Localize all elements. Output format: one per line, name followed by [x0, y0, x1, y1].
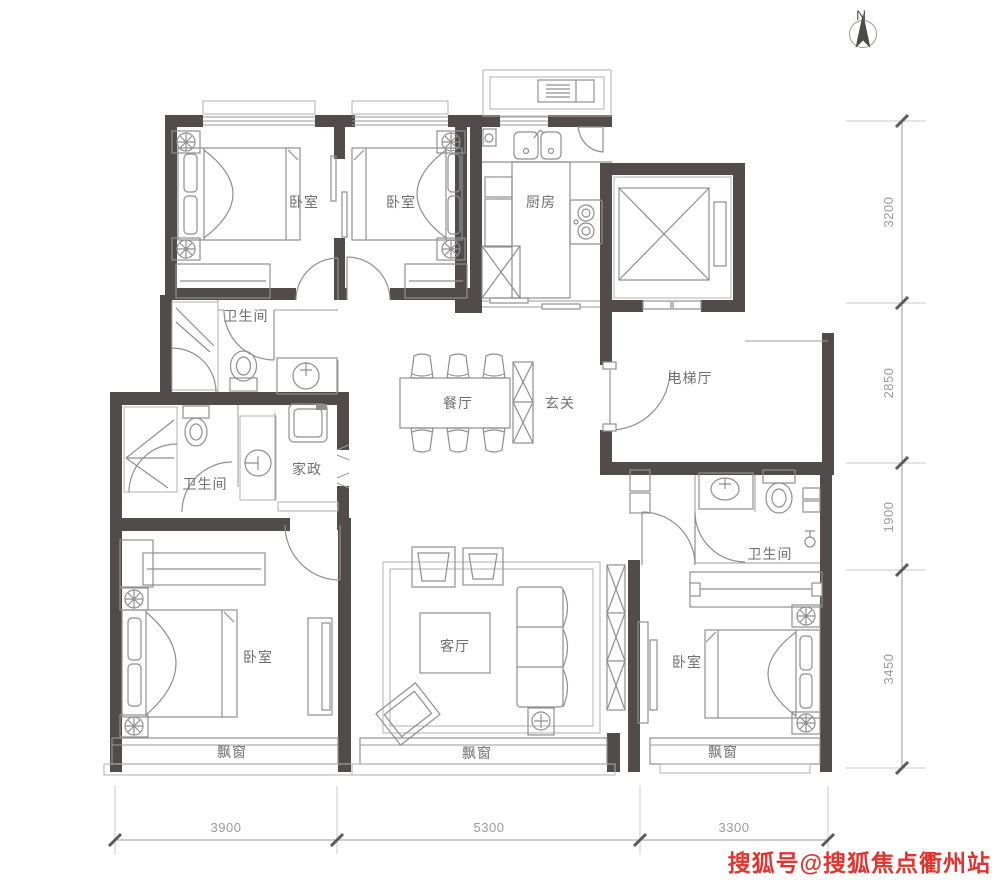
- shower-top: [172, 302, 218, 392]
- label-living: 客厅: [440, 638, 470, 654]
- bedroom-bottom-right-furniture: [638, 572, 822, 723]
- lounge-chair: [376, 683, 440, 745]
- label-bay-window-middle: 飘窗: [462, 745, 492, 761]
- elevator: [614, 177, 731, 309]
- corner-table: [792, 605, 820, 627]
- ac-outdoor-unit: [538, 80, 594, 102]
- shelf: [803, 488, 820, 499]
- ac-platform: [483, 70, 611, 116]
- sliding-door-bedrooms: [331, 156, 347, 237]
- dim-3200: 3200: [881, 197, 896, 228]
- corner-shelf: [578, 127, 603, 152]
- floor-plan-drawing: 卧室 卧室 厨房 卫生间 电梯厅 餐厅 玄关 家政 卫生间 卫生间 客厅 卧室 …: [0, 0, 995, 882]
- label-bedroom-bottom-left: 卧室: [243, 649, 273, 665]
- bed-top-left: [178, 148, 300, 240]
- fridge: [482, 246, 520, 298]
- corner-table: [120, 588, 148, 610]
- side-table: [528, 708, 554, 735]
- dim-3450: 3450: [881, 654, 896, 685]
- tv-console: [638, 622, 657, 723]
- watermark: 搜狐号@搜狐焦点衢州站: [728, 844, 991, 878]
- label-foyer: 玄关: [545, 395, 575, 411]
- dim-5300: 5300: [474, 820, 505, 835]
- toilet-top: [230, 351, 257, 391]
- corner-table: [120, 715, 148, 737]
- basin-left: [240, 416, 276, 500]
- label-housekeeping: 家政: [292, 461, 322, 477]
- label-bath-left: 卫生间: [183, 476, 228, 492]
- floor-plan-page: 卧室 卧室 厨房 卫生间 电梯厅 餐厅 玄关 家政 卫生间 卫生间 客厅 卧室 …: [0, 0, 995, 882]
- dimension-right: 3200 2850 1900 3450: [846, 115, 926, 774]
- label-bedroom-top-left: 卧室: [289, 194, 319, 210]
- tv-cabinet-column: [607, 565, 625, 710]
- label-bedroom-top-middle: 卧室: [386, 194, 416, 210]
- label-bay-window-left: 飘窗: [217, 744, 247, 760]
- kitchen-sink: [514, 130, 561, 159]
- corridor-cabinet: [630, 470, 650, 513]
- north-label: N: [856, 7, 866, 23]
- label-bay-window-right: 飘窗: [708, 744, 738, 760]
- tap: [805, 531, 815, 547]
- sliding-door-kitchen: [482, 298, 600, 309]
- vanity-top: [277, 358, 337, 394]
- label-elevator-hall: 电梯厅: [668, 370, 713, 386]
- bedroom-bottom-left-furniture: [120, 540, 332, 717]
- shower-left: [124, 407, 177, 492]
- label-bath-right: 卫生间: [748, 546, 793, 562]
- shoe-cabinet: [513, 362, 533, 443]
- bed-bottom-left: [122, 610, 237, 717]
- label-kitchen: 厨房: [526, 194, 556, 210]
- housekeeping-fixtures: [278, 404, 338, 511]
- kitchen-fixtures: [482, 127, 612, 298]
- living-room-furniture: [376, 547, 625, 745]
- shelf: [803, 501, 820, 512]
- wardrobe: [120, 540, 153, 587]
- label-bath-top: 卫生间: [224, 308, 269, 324]
- toilet-right: [763, 470, 795, 513]
- dim-1900: 1900: [881, 502, 896, 533]
- label-dining: 餐厅: [443, 395, 473, 411]
- housekeeping-cabinet: [278, 502, 338, 511]
- bath-right-fixtures: [699, 470, 820, 547]
- label-bedroom-bottom-right: 卧室: [672, 654, 702, 670]
- armchair-1: [412, 547, 455, 587]
- dimension-bottom: 3900 5300 3300: [109, 786, 834, 854]
- gas-meter: [483, 129, 496, 146]
- stove: [570, 200, 602, 244]
- dim-3300: 3300: [719, 820, 750, 835]
- washing-machine: [289, 404, 327, 442]
- toilet-left: [183, 406, 209, 446]
- north-compass: N: [850, 7, 877, 48]
- thin-walls: [218, 300, 828, 563]
- vanity-right: [699, 473, 753, 509]
- tv-console: [308, 618, 332, 715]
- dim-3900: 3900: [211, 820, 242, 835]
- bed-bottom-right: [705, 630, 820, 718]
- dim-2850: 2850: [881, 368, 896, 399]
